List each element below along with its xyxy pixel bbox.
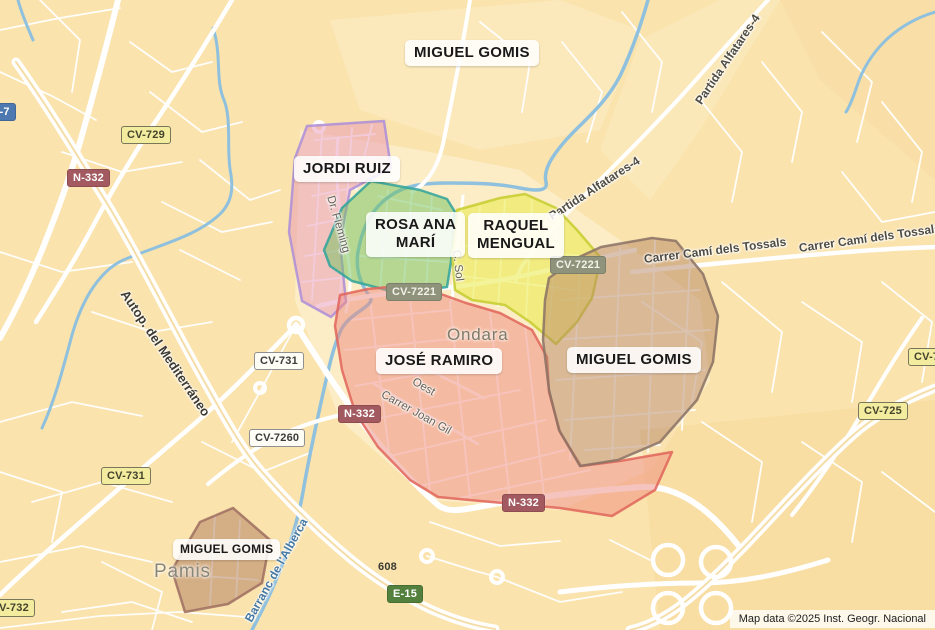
stream-topleft [42, 28, 232, 428]
road-shield-n332-b: N-332 [338, 405, 381, 423]
territory-label-miguel-gomis-east: MIGUEL GOMIS [567, 347, 701, 373]
territory-label-line1: RAQUEL [483, 217, 548, 234]
map-attribution: Map data ©2025 Inst. Geogr. Nacional [730, 610, 935, 628]
road-shield-cv729: CV-729 [121, 126, 171, 144]
road-shield-e15: E-15 [387, 585, 423, 603]
road-shield-cv731-b: CV-731 [101, 467, 151, 485]
map-canvas[interactable]: Partida Alfatares-4 Partida Alfatares-4 … [0, 0, 935, 630]
road-shield-cv725: CV-725 [858, 402, 908, 420]
territory-label-line2: MARÍ [396, 234, 436, 251]
territory-label-text: JOSÉ RAMIRO [385, 352, 493, 369]
stream-corner [18, 0, 33, 40]
road-shield-cv7-edge: CV-7 [908, 348, 935, 366]
road-shield-n332-c: N-332 [502, 494, 545, 512]
territory-label-miguel-gomis-north: MIGUEL GOMIS [405, 40, 539, 66]
territory-label-jose-ramiro: JOSÉ RAMIRO [376, 348, 502, 374]
road-shield-cv731-a: CV-731 [254, 352, 304, 370]
town-label-pamis: Pamis [154, 561, 211, 583]
road-shield-cv7260: CV-7260 [249, 429, 305, 447]
territory-label-text: MIGUEL GOMIS [414, 44, 530, 61]
road-shield-cv7221-a: CV-7221 [386, 283, 442, 301]
road-shield-n332-a: N-332 [67, 169, 110, 187]
territory-label-miguel-gomis-pamis: MIGUEL GOMIS [173, 539, 280, 560]
road-shield-cv7221-b: CV-7221 [550, 256, 606, 274]
road-shield-ap7: P-7 [0, 103, 16, 121]
road-number-608: 608 [373, 559, 402, 575]
territory-label-text: MIGUEL GOMIS [180, 542, 273, 556]
territory-label-text: MIGUEL GOMIS [576, 351, 692, 368]
territory-label-rosa-ana-mari: ROSA ANA MARÍ [366, 212, 465, 257]
territory-label-line2: MENGUAL [477, 235, 555, 252]
territory-label-jordi-ruiz: JORDI RUIZ [294, 156, 400, 182]
territory-label-text: JORDI RUIZ [303, 160, 391, 177]
territory-label-line1: ROSA ANA [375, 216, 456, 233]
road-shield-cv732: CV-732 [0, 599, 35, 617]
territory-label-raquel-mengual: RAQUEL MENGUAL [468, 213, 564, 258]
town-label-ondara: Ondara [447, 325, 509, 345]
